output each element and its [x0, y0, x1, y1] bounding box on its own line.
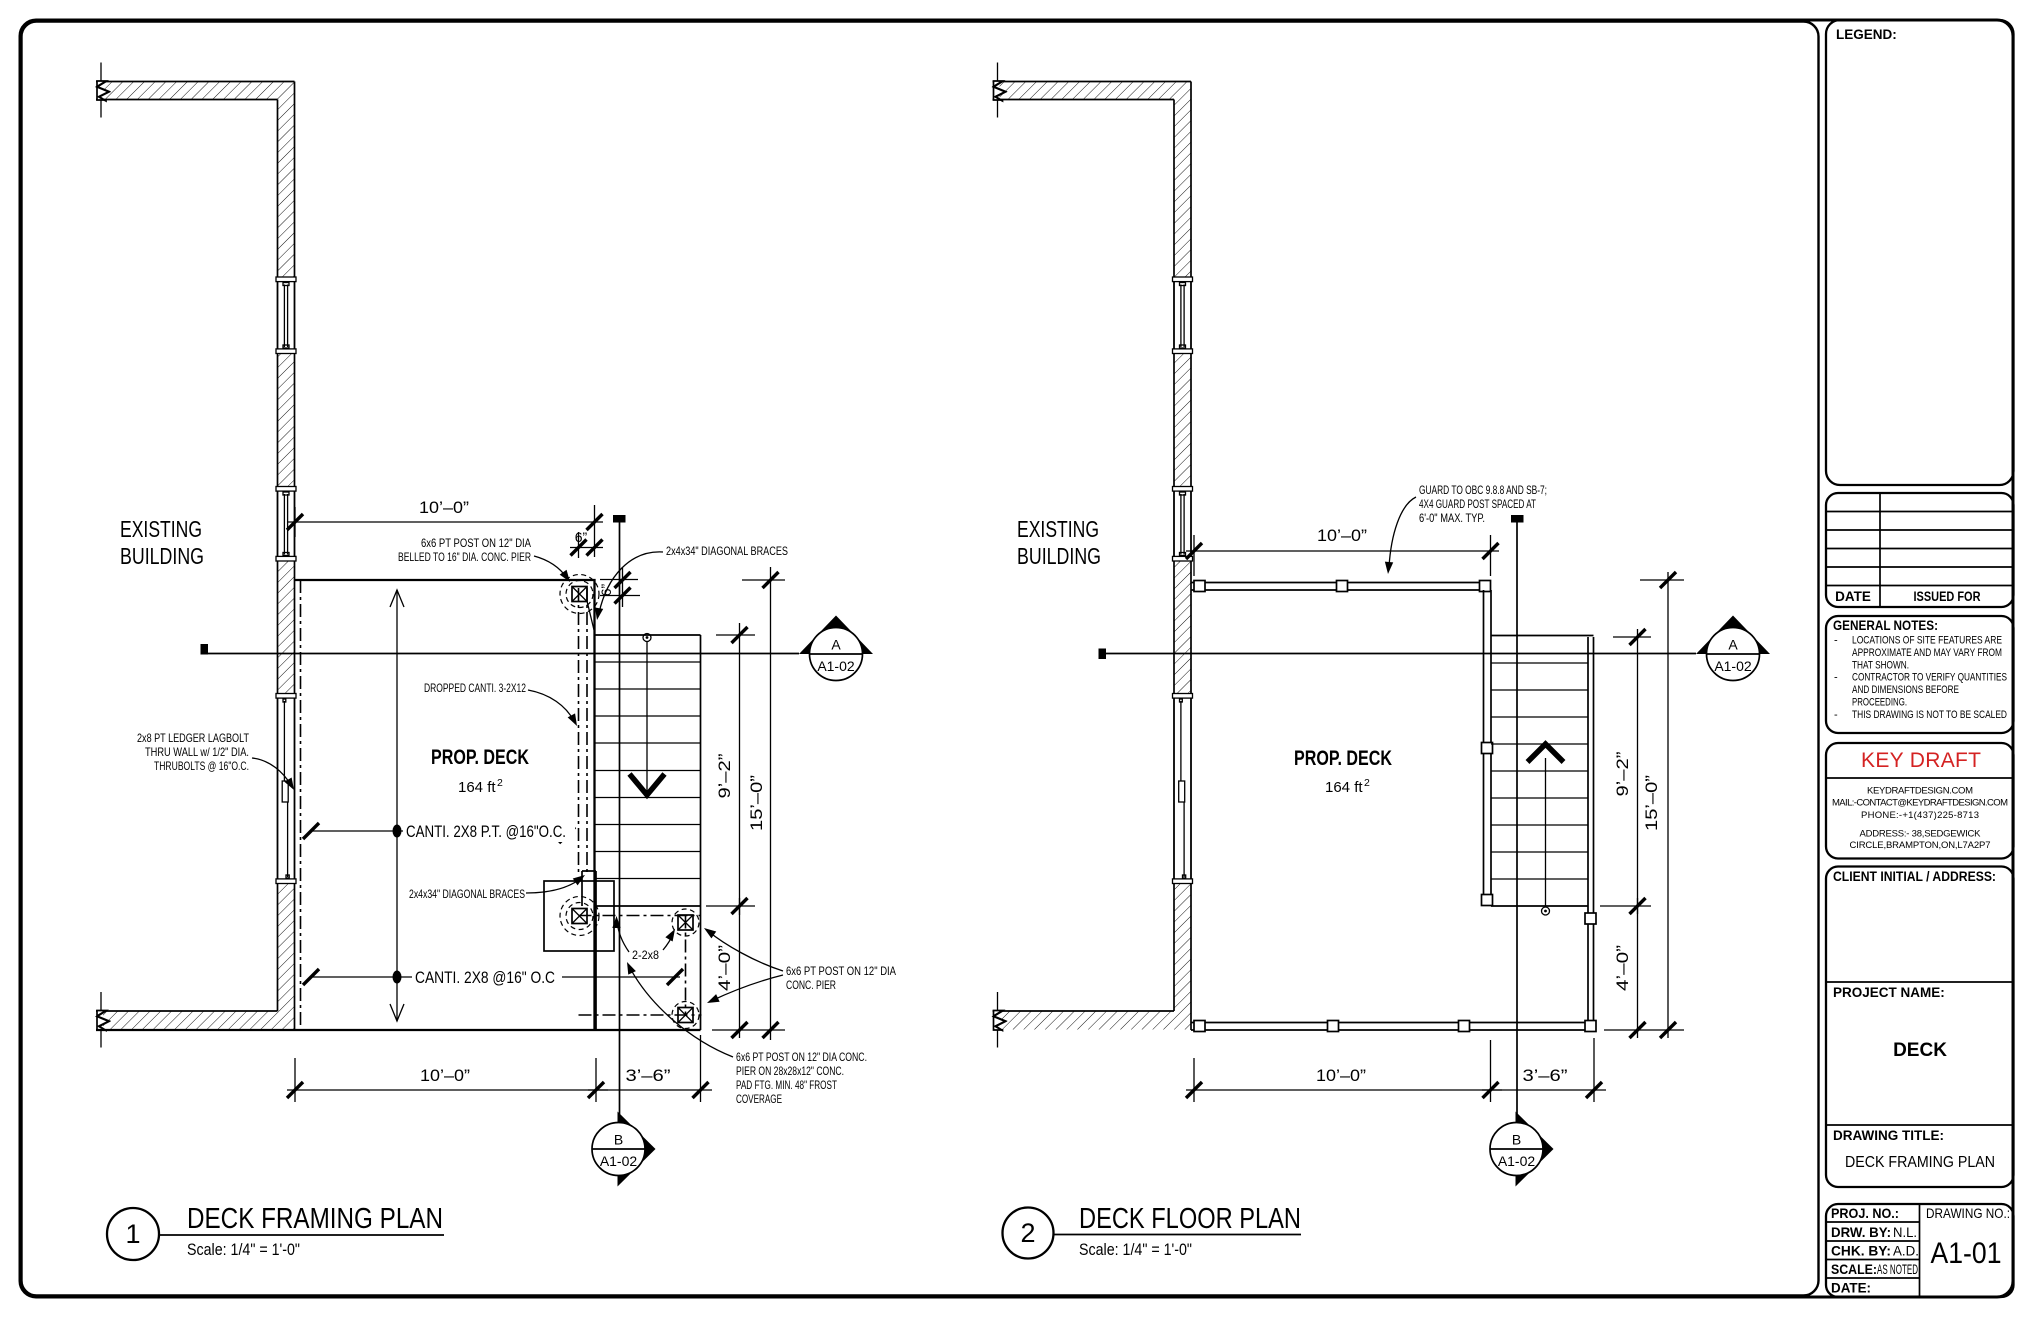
svg-text:CONTRACTOR TO VERIFY QUANTITIE: CONTRACTOR TO VERIFY QUANTITIES [1852, 672, 2007, 684]
svg-text:2: 2 [1364, 777, 1370, 789]
svg-text:CANTI. 2X8 P.T. @16"O.C.: CANTI. 2X8 P.T. @16"O.C. [406, 823, 566, 841]
svg-text:-: - [1834, 635, 1838, 647]
svg-text:GUARD TO OBC 9.8.8 AND SB-7;: GUARD TO OBC 9.8.8 AND SB-7; [1419, 483, 1547, 497]
svg-text:COVERAGE: COVERAGE [736, 1092, 782, 1106]
svg-text:DECK FRAMING PLAN: DECK FRAMING PLAN [1845, 1154, 1995, 1171]
svg-text:10’–0”: 10’–0” [1317, 527, 1367, 545]
svg-text:A: A [1728, 637, 1738, 653]
svg-text:DROPPED CANTI. 3-2X12: DROPPED CANTI. 3-2X12 [424, 681, 526, 695]
svg-text:CONC. PIER: CONC. PIER [786, 978, 836, 992]
svg-text:164 ft: 164 ft [458, 779, 496, 796]
svg-text:2x4x34" DIAGONAL BRACES: 2x4x34" DIAGONAL BRACES [666, 544, 788, 558]
svg-text:BUILDING: BUILDING [120, 543, 204, 569]
svg-text:ISSUED FOR: ISSUED FOR [1914, 589, 1981, 604]
svg-text:A1-02: A1-02 [817, 658, 855, 674]
svg-text:DATE: DATE [1835, 589, 1871, 604]
svg-text:4’–0”: 4’–0” [716, 945, 734, 991]
svg-text:EXISTING: EXISTING [120, 516, 202, 542]
svg-text:-: - [1834, 672, 1838, 684]
svg-text:DECK: DECK [1893, 1040, 1947, 1061]
svg-text:CLIENT INITIAL / ADDRESS:: CLIENT INITIAL / ADDRESS: [1833, 869, 1996, 884]
svg-text:THRU WALL w/ 1/2" DIA.: THRU WALL w/ 1/2" DIA. [145, 745, 249, 759]
svg-text:PROCEEDING.: PROCEEDING. [1852, 697, 1907, 709]
svg-text:KEY DRAFT: KEY DRAFT [1861, 749, 1981, 772]
svg-text:10’–0”: 10’–0” [1316, 1067, 1366, 1085]
svg-text:CIRCLE,BRAMPTON,ON,L7A2P7: CIRCLE,BRAMPTON,ON,L7A2P7 [1850, 840, 1991, 851]
svg-text:DRAWING TITLE:: DRAWING TITLE: [1833, 1128, 1944, 1143]
svg-text:PROJ. NO.:: PROJ. NO.: [1831, 1205, 1899, 1221]
svg-text:PROP. DECK: PROP. DECK [431, 746, 529, 769]
svg-text:Scale: 1/4" = 1'-0": Scale: 1/4" = 1'-0" [187, 1240, 300, 1259]
svg-text:6x6 PT POST ON 12" DIA: 6x6 PT POST ON 12" DIA [786, 964, 896, 978]
svg-text:DRAWING NO.:: DRAWING NO.: [1926, 1205, 2010, 1221]
svg-text:AS NOTED: AS NOTED [1877, 1261, 1918, 1277]
svg-text:2x4x34" DIAGONAL BRACES: 2x4x34" DIAGONAL BRACES [409, 887, 525, 901]
svg-text:CHK. BY:: CHK. BY: [1831, 1243, 1891, 1259]
svg-text:THRUBOLTS @ 16"O.C.: THRUBOLTS @ 16"O.C. [154, 759, 249, 773]
svg-text:9’–2”: 9’–2” [1614, 752, 1632, 797]
svg-text:B: B [614, 1132, 623, 1148]
svg-text:THAT SHOWN.: THAT SHOWN. [1852, 659, 1909, 671]
svg-text:A1-01: A1-01 [1931, 1237, 2002, 1270]
svg-text:BUILDING: BUILDING [1017, 543, 1101, 569]
svg-text:2: 2 [497, 777, 503, 789]
svg-text:APPROXIMATE AND MAY VARY FROM: APPROXIMATE AND MAY VARY FROM [1852, 647, 2002, 659]
svg-text:6x6 PT POST ON 12" DIA CONC.: 6x6 PT POST ON 12" DIA CONC. [736, 1050, 867, 1064]
svg-text:1: 1 [125, 1219, 140, 1249]
svg-text:6x6 PT POST ON 12" DIA: 6x6 PT POST ON 12" DIA [421, 536, 531, 550]
svg-text:A1-02: A1-02 [1498, 1153, 1536, 1169]
svg-text:10’–0”: 10’–0” [419, 499, 469, 517]
svg-text:9’–2”: 9’–2” [716, 754, 734, 799]
svg-text:B: B [1512, 1132, 1521, 1148]
svg-text:Scale: 1/4" = 1'-0": Scale: 1/4" = 1'-0" [1079, 1240, 1192, 1259]
svg-text:PROP. DECK: PROP. DECK [1294, 747, 1392, 770]
svg-text:3’–6”: 3’–6” [626, 1067, 671, 1085]
svg-text:PIER ON 28x28x12" CONC.: PIER ON 28x28x12" CONC. [736, 1064, 844, 1078]
svg-text:N.L.: N.L. [1893, 1224, 1917, 1240]
svg-text:A1-02: A1-02 [1714, 658, 1752, 674]
svg-text:A1-02: A1-02 [600, 1153, 638, 1169]
svg-text:6”: 6” [598, 583, 614, 596]
svg-text:DRW. BY:: DRW. BY: [1831, 1224, 1891, 1240]
svg-text:KEYDRAFTDESIGN.COM: KEYDRAFTDESIGN.COM [1867, 786, 1973, 797]
svg-text:DECK FRAMING PLAN: DECK FRAMING PLAN [187, 1203, 443, 1235]
svg-text:GENERAL NOTES:: GENERAL NOTES: [1833, 618, 1938, 633]
svg-text:15’–0”: 15’–0” [748, 775, 766, 831]
svg-text:2x8 PT LEDGER LAGBOLT: 2x8 PT LEDGER LAGBOLT [137, 731, 250, 745]
svg-text:ADDRESS:- 38,SEDGEWICK: ADDRESS:- 38,SEDGEWICK [1860, 829, 1982, 840]
svg-text:CANTI. 2X8 @16" O.C: CANTI. 2X8 @16" O.C [415, 969, 555, 987]
svg-text:DATE:: DATE: [1831, 1280, 1871, 1296]
svg-text:LEGEND:: LEGEND: [1836, 27, 1897, 42]
svg-text:2-2x8: 2-2x8 [632, 948, 659, 962]
svg-text:4X4 GUARD POST SPACED AT: 4X4 GUARD POST SPACED AT [1419, 497, 1536, 511]
svg-text:3’–6”: 3’–6” [1523, 1067, 1568, 1085]
svg-text:SCALE:: SCALE: [1831, 1261, 1877, 1277]
svg-text:A.D.: A.D. [1893, 1243, 1919, 1259]
svg-text:10’–0”: 10’–0” [420, 1067, 470, 1085]
svg-text:AND DIMENSIONS BEFORE: AND DIMENSIONS BEFORE [1852, 684, 1959, 696]
svg-text:2: 2 [1020, 1218, 1035, 1248]
svg-text:-: - [1834, 709, 1838, 721]
svg-text:4’–0”: 4’–0” [1614, 945, 1632, 991]
svg-text:DECK FLOOR PLAN: DECK FLOOR PLAN [1079, 1203, 1301, 1235]
svg-text:164 ft: 164 ft [1325, 779, 1363, 796]
svg-text:MAIL:-CONTACT@KEYDRAFTDESIGN.C: MAIL:-CONTACT@KEYDRAFTDESIGN.COM [1832, 798, 2008, 809]
svg-text:THIS DRAWING IS NOT TO BE SCAL: THIS DRAWING IS NOT TO BE SCALED [1852, 709, 2007, 721]
svg-text:PROJECT NAME:: PROJECT NAME: [1833, 985, 1945, 1000]
svg-text:6”: 6” [575, 529, 588, 545]
svg-text:BELLED TO 16" DIA. CONC. PIER: BELLED TO 16" DIA. CONC. PIER [398, 550, 531, 564]
svg-text:PHONE:-+1(437)225-8713: PHONE:-+1(437)225-8713 [1861, 810, 1979, 821]
svg-text:6'-0" MAX. TYP.: 6'-0" MAX. TYP. [1419, 511, 1485, 525]
svg-text:EXISTING: EXISTING [1017, 516, 1099, 542]
svg-text:LOCATIONS OF SITE FEATURES ARE: LOCATIONS OF SITE FEATURES ARE [1852, 635, 2002, 647]
svg-text:15’–0”: 15’–0” [1643, 775, 1661, 831]
svg-text:A: A [831, 637, 841, 653]
svg-text:PAD FTG. MIN. 48" FROST: PAD FTG. MIN. 48" FROST [736, 1078, 837, 1092]
